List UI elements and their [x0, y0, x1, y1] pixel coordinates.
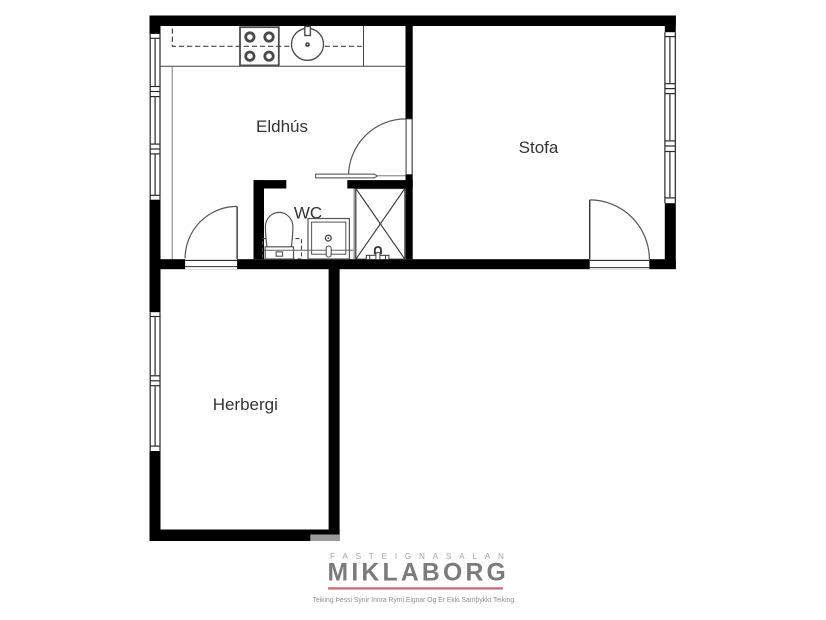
svg-text:Eldhús: Eldhús	[256, 117, 308, 136]
svg-text:MIKLABORG: MIKLABORG	[328, 559, 510, 586]
svg-text:Stofa: Stofa	[519, 138, 559, 157]
svg-text:Teiking Þessi Sýnir Innra Rými: Teiking Þessi Sýnir Innra Rými Eignar Og…	[313, 597, 517, 604]
svg-text:Herbergi: Herbergi	[213, 395, 278, 414]
